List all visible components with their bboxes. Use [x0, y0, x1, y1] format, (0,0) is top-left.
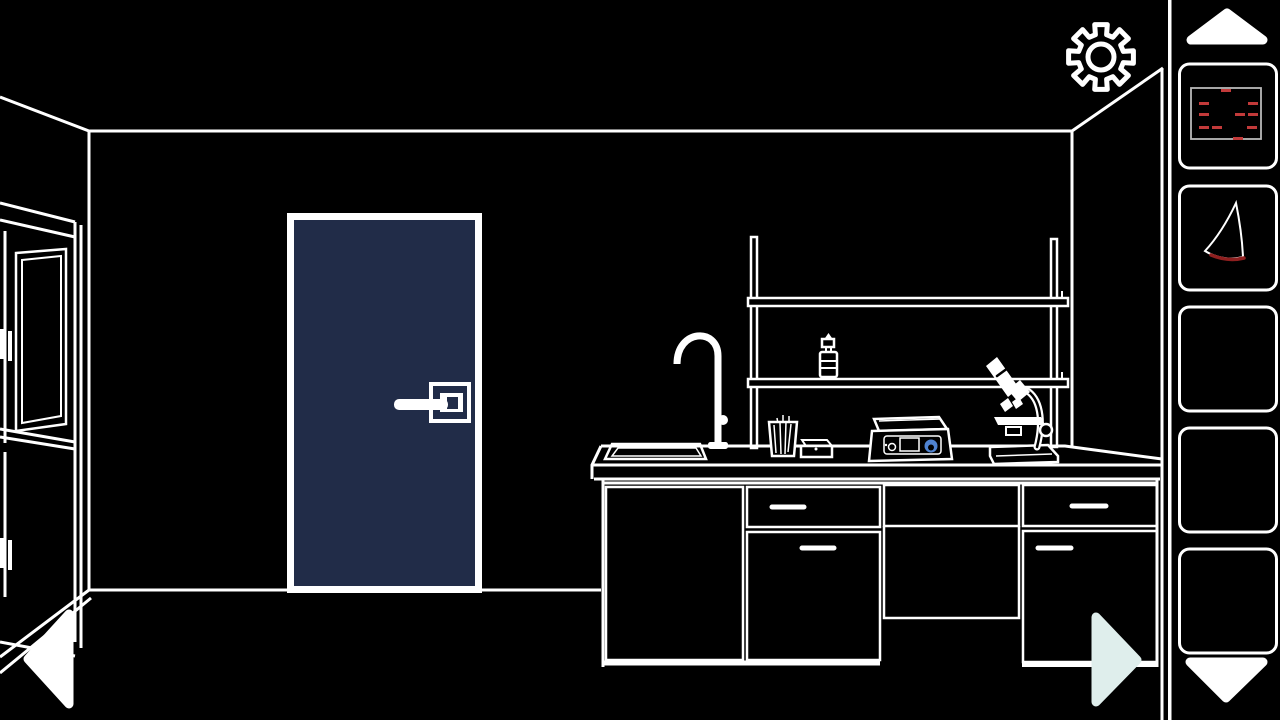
microscope[interactable] [986, 357, 1058, 464]
left-cabinet[interactable] [0, 203, 81, 656]
microscope-focus-knob[interactable] [1040, 424, 1052, 436]
door[interactable] [287, 213, 482, 593]
brush-cup[interactable] [769, 415, 797, 456]
game-screen [0, 0, 1280, 720]
room-walls [0, 68, 1163, 720]
nav-right-button[interactable] [1096, 617, 1137, 702]
cabinet-door-mid[interactable] [747, 532, 880, 660]
inventory-slot-5[interactable] [1180, 549, 1277, 653]
faucet[interactable] [677, 336, 728, 449]
cabinet-door-right[interactable] [1023, 531, 1157, 662]
inventory-scroll-down[interactable] [1190, 662, 1263, 698]
gear-icon [1069, 25, 1134, 90]
nav-left-button[interactable] [28, 614, 69, 704]
inventory-divider [1168, 0, 1172, 720]
right-arrow-icon [1096, 617, 1137, 702]
left-arrow-icon [28, 614, 69, 704]
hot-plate[interactable] [869, 417, 952, 461]
inventory-slot-3[interactable] [1180, 307, 1277, 411]
cabinet-door-left[interactable] [606, 487, 743, 660]
small-box[interactable] [801, 440, 832, 457]
settings-button[interactable] [1069, 25, 1134, 90]
inventory-slot-2[interactable] [1180, 186, 1277, 290]
wall-shelves[interactable] [748, 237, 1068, 448]
faucet-handle[interactable] [718, 415, 728, 425]
knee-space [884, 526, 1019, 618]
inventory-slot-1[interactable] [1180, 64, 1277, 168]
inventory-slot-4[interactable] [1180, 428, 1277, 532]
up-arrow-icon [1191, 13, 1263, 40]
inventory-panel [1168, 0, 1277, 720]
down-arrow-icon [1190, 662, 1263, 698]
inventory-scroll-up[interactable] [1191, 13, 1263, 40]
dropper-bottle[interactable] [820, 333, 837, 377]
drawer-1[interactable] [747, 487, 880, 527]
counter-cabinets[interactable] [592, 446, 1162, 667]
drawer-2[interactable] [884, 485, 1019, 526]
